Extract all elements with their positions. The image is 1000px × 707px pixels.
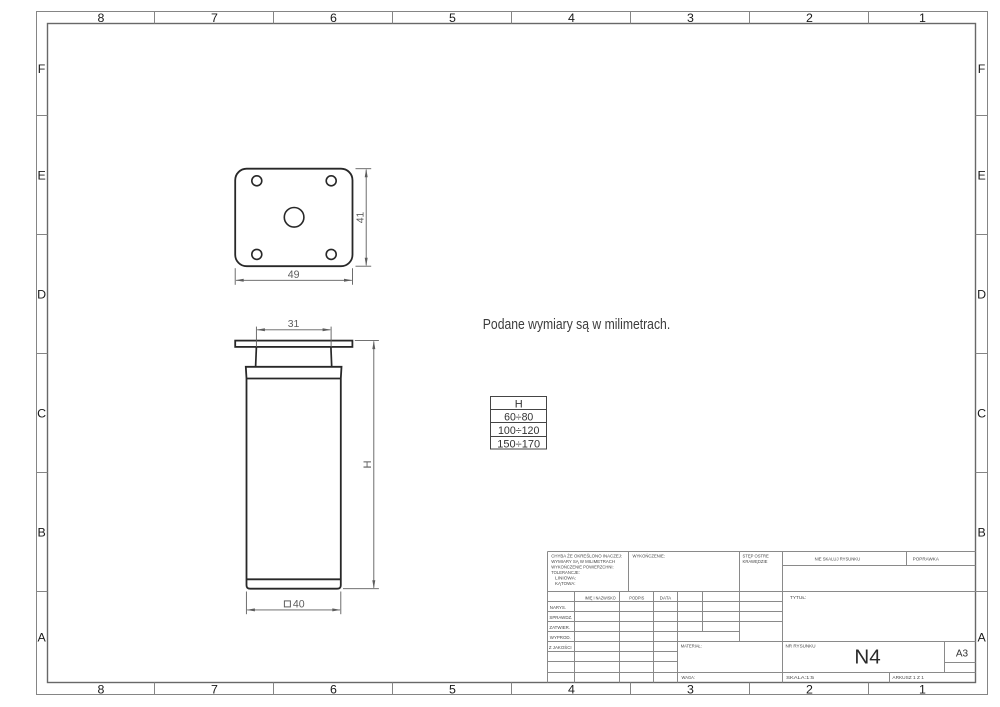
svg-text:NIE SKALUJ RYSUNKU: NIE SKALUJ RYSUNKU [815,556,861,561]
svg-text:100÷120: 100÷120 [498,425,539,437]
svg-text:DATA: DATA [660,595,672,600]
svg-text:Podane wymiary są w milimetrac: Podane wymiary są w milimetrach. [483,316,670,333]
svg-text:C: C [977,406,986,420]
svg-text:NR RYSUNKU: NR RYSUNKU [786,644,816,649]
svg-text:8: 8 [98,11,105,25]
svg-text:KĄTOWA:: KĄTOWA: [555,581,576,586]
svg-text:WYKOŃCZENIE POWIERZCHNI:: WYKOŃCZENIE POWIERZCHNI: [551,565,614,570]
svg-text:2: 2 [806,683,813,697]
svg-text:150÷170: 150÷170 [497,438,540,450]
svg-text:4: 4 [568,11,575,25]
svg-text:MATERIAŁ:: MATERIAŁ: [681,643,702,648]
svg-text:IMIĘ I NAZWISKO: IMIĘ I NAZWISKO [585,595,616,600]
svg-text:5: 5 [449,11,456,25]
svg-text:ARKUSZ 1 Z 1: ARKUSZ 1 Z 1 [892,675,924,680]
svg-text:ZATWIER.: ZATWIER. [549,625,570,630]
svg-text:1: 1 [919,683,926,697]
svg-text:D: D [37,287,46,301]
svg-text:CHYBA ŻE OKREŚLONO INACZEJ:: CHYBA ŻE OKREŚLONO INACZEJ: [551,554,622,559]
svg-text:1: 1 [919,11,926,25]
svg-text:D: D [977,287,986,301]
svg-text:LINIOWA:: LINIOWA: [555,576,576,581]
svg-text:PODPIS: PODPIS [629,595,644,600]
svg-text:SPRAWDZ.: SPRAWDZ. [549,615,572,620]
svg-text:B: B [37,525,45,539]
svg-text:E: E [37,168,45,182]
svg-text:3: 3 [687,683,694,697]
svg-text:2: 2 [806,11,813,25]
svg-text:WYPROD.: WYPROD. [550,635,571,640]
svg-text:40: 40 [293,599,305,611]
svg-text:STĘP OSTRE: STĘP OSTRE [743,554,769,559]
svg-text:6: 6 [330,683,337,697]
svg-text:WYMIARY SĄ W MILIMETRACH: WYMIARY SĄ W MILIMETRACH [551,559,615,564]
svg-text:C: C [37,406,46,420]
svg-text:SKALA:1:5: SKALA:1:5 [786,675,815,680]
svg-text:TYTUŁ:: TYTUŁ: [790,595,806,600]
svg-text:3: 3 [687,11,694,25]
svg-text:WYKOŃCZENIE:: WYKOŃCZENIE: [633,554,666,559]
svg-text:Z JAKOŚCI: Z JAKOŚCI [549,645,572,650]
svg-text:E: E [977,168,985,182]
svg-text:F: F [978,62,986,76]
svg-text:H: H [362,460,374,468]
svg-text:41: 41 [356,212,367,224]
svg-text:7: 7 [211,683,218,697]
svg-text:KRAWĘDZIE: KRAWĘDZIE [743,559,768,564]
svg-text:POPRAWKA: POPRAWKA [913,556,939,561]
svg-text:4: 4 [568,683,575,697]
svg-text:A: A [37,630,46,644]
svg-text:A3: A3 [956,648,969,659]
svg-text:F: F [38,62,46,76]
svg-text:B: B [977,525,985,539]
svg-text:NARYS.: NARYS. [550,605,566,610]
svg-text:49: 49 [288,269,300,281]
svg-text:N4: N4 [854,646,880,669]
svg-text:6: 6 [330,11,337,25]
svg-text:H: H [515,398,523,410]
svg-text:TOLERANCJE:: TOLERANCJE: [551,570,580,575]
svg-text:7: 7 [211,11,218,25]
svg-text:5: 5 [449,683,456,697]
svg-text:A: A [977,630,986,644]
svg-text:WAGA:: WAGA: [682,675,696,680]
svg-text:8: 8 [98,683,105,697]
svg-text:60÷80: 60÷80 [504,412,533,424]
svg-text:31: 31 [288,319,300,330]
